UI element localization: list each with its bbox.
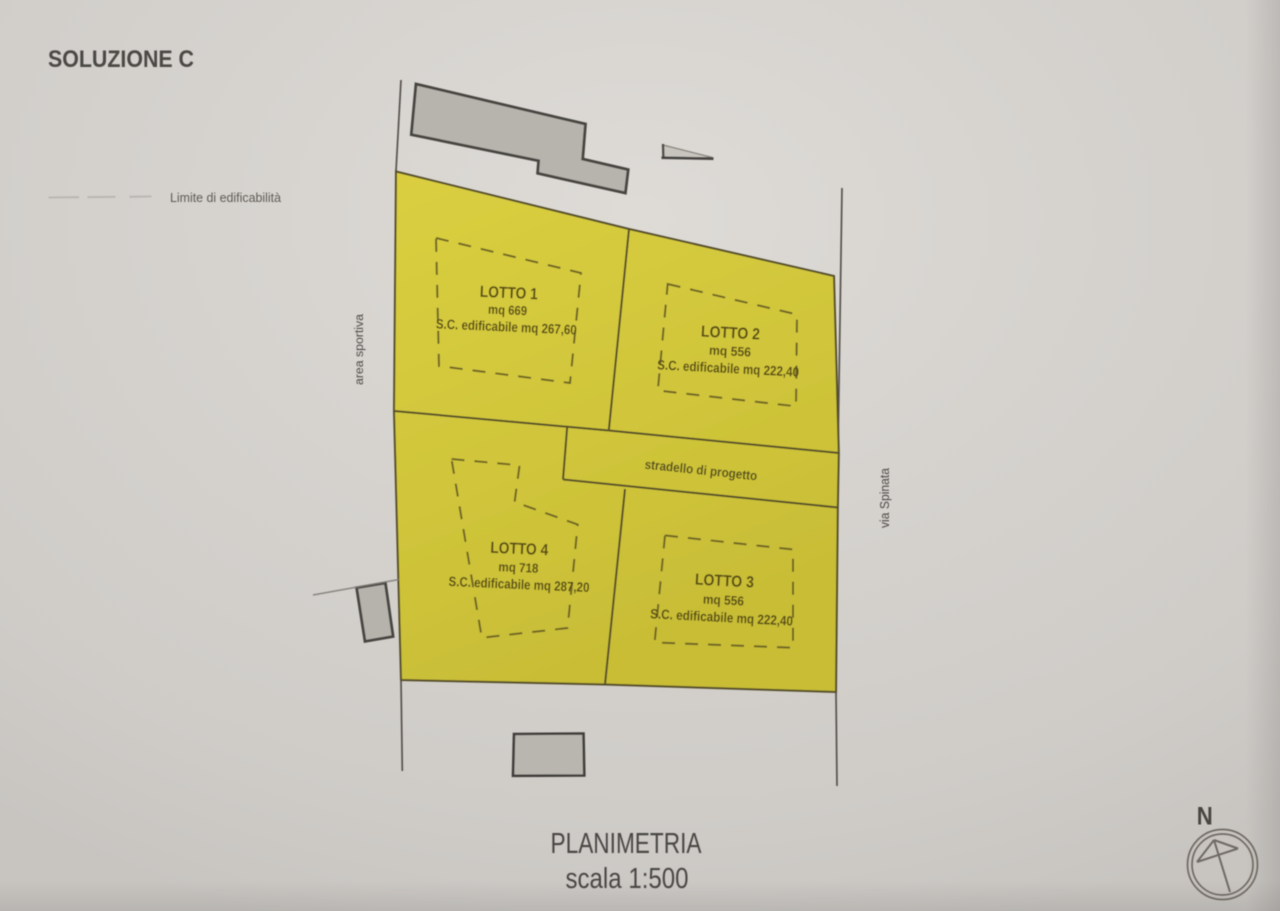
svg-text:scala 1:500: scala 1:500	[566, 863, 689, 895]
svg-text:Limite di edificabilità: Limite di edificabilità	[170, 190, 282, 205]
svg-text:N: N	[1197, 803, 1213, 831]
svg-text:PLANIMETRIA: PLANIMETRIA	[551, 828, 703, 860]
svg-text:mq 669: mq 669	[488, 302, 528, 319]
svg-text:LOTTO 3: LOTTO 3	[695, 572, 755, 592]
svg-text:LOTTO 2: LOTTO 2	[701, 324, 761, 344]
svg-text:mq 718: mq 718	[498, 559, 539, 576]
svg-text:area sportiva: area sportiva	[354, 313, 366, 385]
svg-text:LOTTO 1: LOTTO 1	[479, 284, 538, 304]
svg-text:SOLUZIONE C: SOLUZIONE C	[48, 46, 194, 73]
svg-text:LOTTO 4: LOTTO 4	[490, 540, 549, 560]
svg-text:mq 556: mq 556	[703, 591, 745, 608]
svg-text:mq 556: mq 556	[709, 342, 752, 359]
svg-text:via Spinata: via Spinata	[878, 468, 892, 528]
